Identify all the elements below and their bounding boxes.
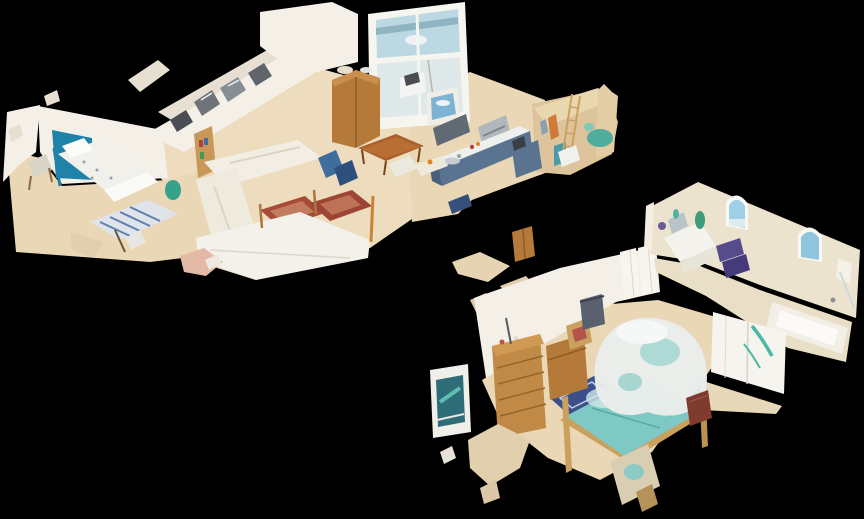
ladder-rung [566,133,575,134]
arched-window-sill-1 [729,219,745,227]
table-clutter [428,160,433,165]
foot-teal-patch [624,464,644,480]
duvet-floral [91,177,94,180]
armoire-top-clutter [337,66,353,74]
picture-cloud [436,100,450,106]
armoire-top-clutter [360,67,372,73]
dollhouse-viewport[interactable] [0,0,864,519]
window-view-car [405,35,427,45]
duvet-floral [83,161,86,164]
book [199,140,203,147]
teal-bin [165,180,181,200]
wardrobe-door-split [747,322,748,384]
duvet-floral [96,169,99,172]
tub-fixture [831,298,836,303]
ladder-rung [570,107,579,108]
canopy-highlight [616,320,668,344]
book [200,152,204,159]
duvet-floral [110,177,113,180]
green-vase [695,211,705,229]
counter-clutter [476,142,480,146]
dresser-decor [514,336,518,340]
teal-basket-small [584,123,594,131]
dresser-decor [500,340,505,345]
counter-clutter [470,145,474,149]
purple-item [658,222,666,230]
ladder-rung [568,120,577,121]
teal-bottle [673,209,679,219]
book [204,138,208,145]
canopy-teal-patch [618,373,642,391]
screenshot-root [0,0,864,519]
teal-basket [587,129,613,147]
faucet [457,154,461,158]
wood-column [371,196,373,242]
arched-window-sky-2 [801,232,819,260]
